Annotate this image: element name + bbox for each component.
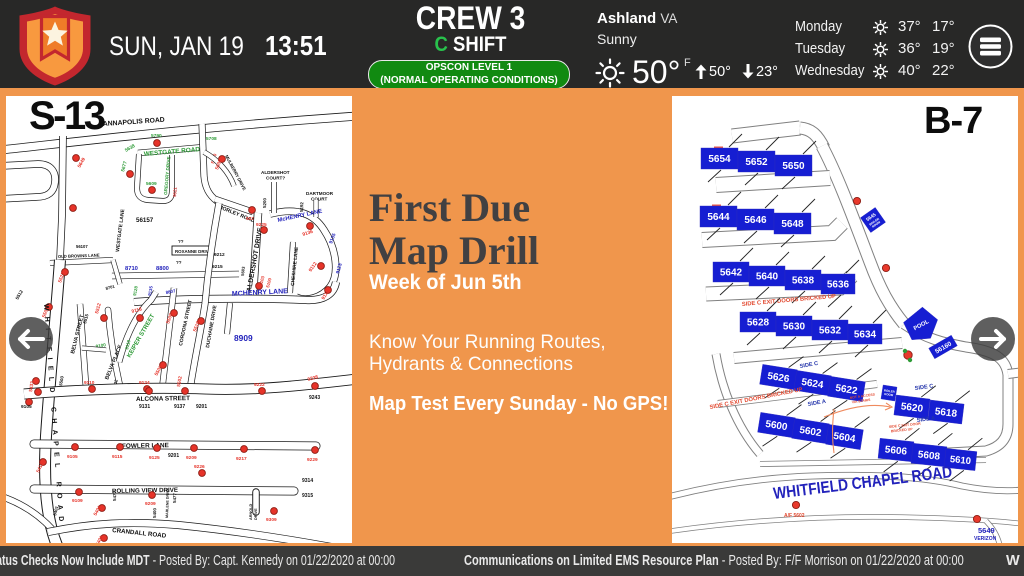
svg-text:??: ?? — [176, 260, 182, 265]
svg-text:9136: 9136 — [302, 229, 314, 238]
svg-text:FOWLER LANE: FOWLER LANE — [122, 442, 170, 450]
svg-text:56157: 56157 — [136, 217, 154, 224]
svg-text:9226: 9226 — [194, 464, 205, 470]
svg-text:9243: 9243 — [309, 395, 320, 401]
svg-text:5634: 5634 — [854, 330, 877, 341]
svg-text:56107: 56107 — [76, 244, 88, 249]
svg-text:9209: 9209 — [145, 501, 156, 507]
svg-text:9314: 9314 — [302, 478, 313, 484]
svg-text:5610: 5610 — [949, 454, 971, 467]
svg-text:5512: 5512 — [94, 302, 103, 314]
svg-text:5654: 5654 — [708, 154, 731, 165]
svg-text:9112: 9112 — [308, 261, 319, 273]
svg-text:COURT: COURT — [311, 196, 328, 201]
svg-text:5648: 5648 — [781, 219, 804, 230]
svg-text:5642: 5642 — [720, 268, 743, 279]
svg-text:5632: 5632 — [819, 326, 842, 337]
svg-text:5103: 5103 — [258, 275, 266, 286]
svg-text:5649: 5649 — [978, 526, 995, 535]
svg-text:S-13: S-13 — [29, 96, 105, 138]
svg-text:9105: 9105 — [67, 454, 78, 460]
svg-text:ANNAPOLIS ROAD: ANNAPOLIS ROAD — [103, 117, 165, 128]
svg-text:5477: 5477 — [112, 491, 117, 501]
svg-text:CORDONA STREET: CORDONA STREET — [178, 299, 194, 346]
svg-text:SIDE A: SIDE A — [807, 399, 826, 408]
svg-text:SIDE C: SIDE C — [914, 383, 933, 392]
svg-text:5606: 5606 — [884, 444, 908, 457]
svg-text:9109: 9109 — [72, 498, 83, 504]
svg-text:9212: 9212 — [214, 252, 225, 258]
svg-text:9115: 9115 — [112, 454, 123, 460]
svg-text:9201: 9201 — [168, 453, 179, 459]
svg-text:SIDE C: SIDE C — [799, 361, 818, 370]
svg-text:5638: 5638 — [124, 143, 137, 154]
svg-text:5628: 5628 — [747, 318, 770, 329]
svg-text:9105: 9105 — [21, 404, 32, 410]
svg-text:ARNOLD: ARNOLD — [249, 504, 253, 520]
svg-text:5603: 5603 — [240, 266, 246, 276]
svg-text:5512: 5512 — [15, 289, 25, 301]
svg-text:WHITFIELD CHAPEL ROAD: WHITFIELD CHAPEL ROAD — [772, 463, 953, 503]
svg-text:5608: 5608 — [917, 449, 941, 462]
svg-text:5400: 5400 — [152, 508, 157, 518]
svg-text:MARLENE DRIVE: MARLENE DRIVE — [165, 488, 170, 518]
svg-text:A/F 5602: A/F 5602 — [784, 513, 805, 519]
svg-text:5646: 5646 — [744, 215, 767, 226]
svg-text:9131: 9131 — [139, 404, 150, 410]
svg-text:9309: 9309 — [266, 517, 277, 523]
svg-text:9229: 9229 — [307, 457, 318, 463]
svg-text:5500: 5500 — [58, 375, 65, 386]
svg-text:5638: 5638 — [792, 276, 815, 287]
svg-text:9201: 9201 — [196, 404, 207, 410]
svg-text:9125: 9125 — [149, 455, 160, 461]
svg-text:5708: 5708 — [206, 136, 217, 142]
svg-text:9215: 9215 — [212, 264, 223, 270]
svg-text:9137: 9137 — [174, 404, 185, 410]
svg-text:ALCONA STREET: ALCONA STREET — [136, 395, 190, 403]
svg-text:5100: 5100 — [265, 277, 273, 288]
svg-text:8909: 8909 — [234, 333, 253, 343]
svg-text:B-7: B-7 — [924, 100, 982, 142]
svg-text:9124: 9124 — [139, 380, 150, 386]
svg-text:9225: 9225 — [256, 222, 267, 228]
svg-text:ALDERSHOT: ALDERSHOT — [261, 170, 290, 175]
svg-text:5200: 5200 — [262, 198, 267, 208]
svg-text:5192: 5192 — [299, 202, 304, 212]
svg-text:9209: 9209 — [186, 455, 197, 461]
svg-text:9217: 9217 — [236, 456, 247, 462]
svg-text:5630: 5630 — [783, 322, 806, 333]
svg-text:DRIVE: DRIVE — [254, 508, 258, 520]
svg-text:5650: 5650 — [782, 161, 805, 172]
svg-text:5609: 5609 — [146, 181, 157, 187]
svg-text:COURT?: COURT? — [266, 175, 285, 180]
svg-text:9222: 9222 — [254, 382, 265, 388]
svg-text:5677: 5677 — [120, 160, 129, 172]
svg-text:8710: 8710 — [125, 266, 138, 272]
svg-text:9621: 9621 — [172, 186, 178, 197]
svg-text:VERIZON: VERIZON — [974, 536, 997, 542]
svg-text:ROXANNE DRIVE: ROXANNE DRIVE — [175, 249, 212, 254]
svg-text:CRANDALL ROAD: CRANDALL ROAD — [112, 527, 167, 540]
svg-text:8800: 8800 — [156, 266, 169, 272]
svg-text:DARTMOOR: DARTMOOR — [306, 191, 334, 196]
svg-text:5636: 5636 — [827, 280, 850, 291]
svg-text:9110: 9110 — [84, 380, 95, 386]
svg-text:WESTGATE LANE: WESTGATE LANE — [115, 208, 126, 252]
svg-text:9315: 9315 — [302, 493, 313, 499]
svg-text:5640: 5640 — [756, 272, 779, 283]
svg-text:5652: 5652 — [745, 157, 768, 168]
svg-text:5790: 5790 — [151, 133, 162, 139]
svg-text:5477: 5477 — [172, 493, 177, 503]
svg-text:9128: 9128 — [132, 285, 139, 296]
svg-text:8701: 8701 — [105, 284, 116, 291]
svg-text:??: ?? — [178, 239, 184, 244]
svg-text:5644: 5644 — [707, 212, 730, 223]
